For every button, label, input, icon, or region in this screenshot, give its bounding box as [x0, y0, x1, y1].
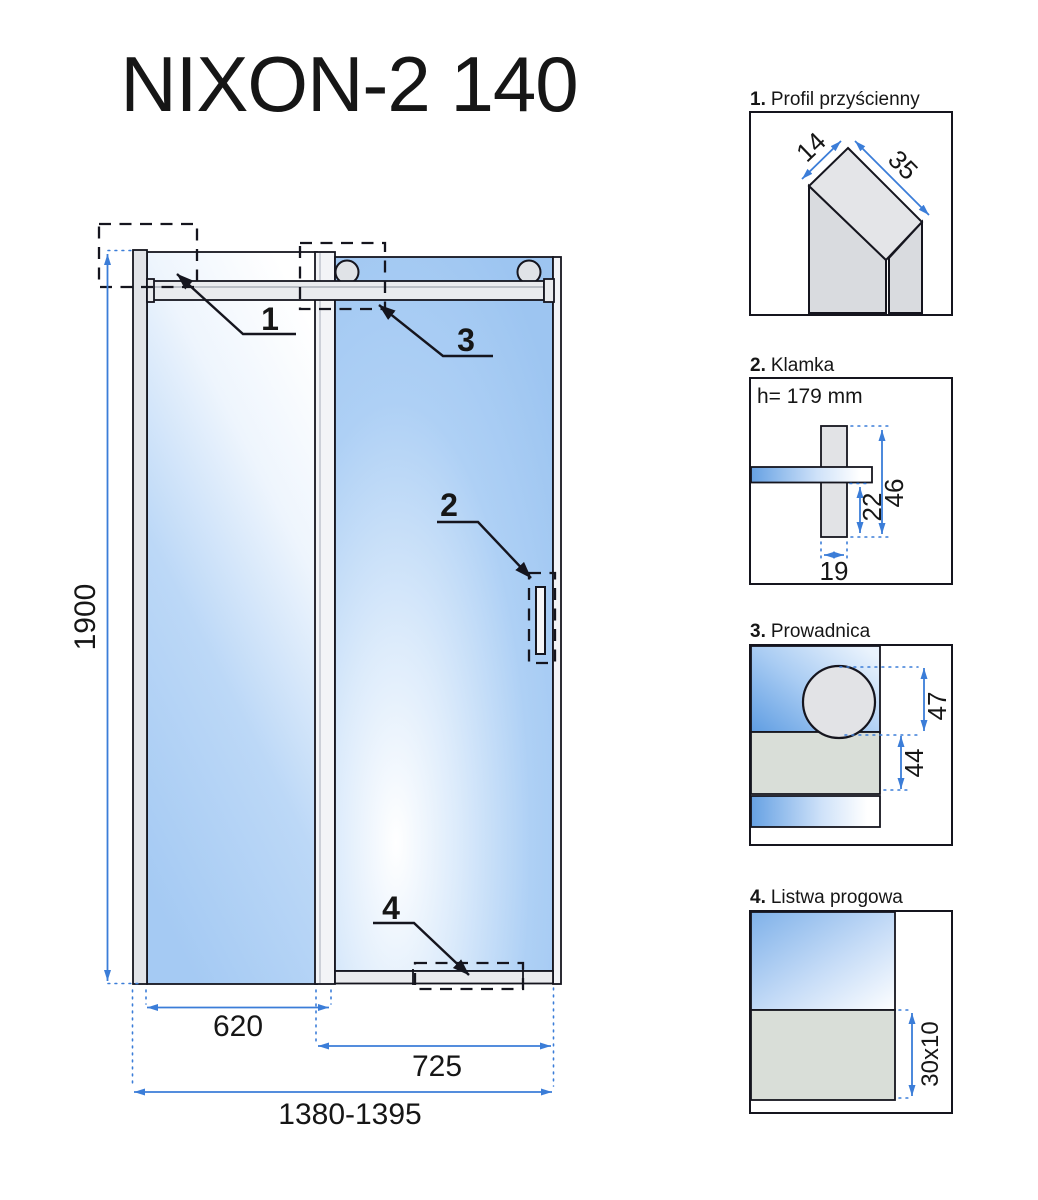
- page: { "title": "NIXON-2 140", "drawing": { "…: [0, 0, 1038, 1200]
- guide-lower-glass-strip: [751, 796, 880, 827]
- glass-section-bar: [751, 467, 872, 483]
- door-glass: [335, 257, 553, 971]
- fixed-panel-glass: [147, 252, 317, 984]
- callout-2-number: 2: [440, 487, 458, 523]
- dim-height-label: 1900: [69, 584, 102, 651]
- dim-door-width-label: 725: [412, 1050, 462, 1083]
- guide-rail-bar: [751, 732, 880, 794]
- panel-1-label: Profil przyścienny: [771, 89, 920, 110]
- panel-1-title: 1.Profil przyścienny: [750, 90, 920, 110]
- panel-2-number: 2.: [750, 355, 766, 376]
- panel-4-label: Listwa progowa: [771, 887, 903, 908]
- detail-panel-4-threshold: 30x10: [750, 911, 952, 1113]
- callout-1-number: 1: [261, 301, 279, 337]
- panel-3-number: 3.: [750, 621, 766, 642]
- top-rail: [147, 281, 544, 300]
- callout-4-number: 4: [382, 890, 400, 926]
- detail-panel-2-handle: h= 179 mm 22 46 19: [750, 378, 952, 586]
- guide-roller: [803, 666, 875, 738]
- main-drawing: 1 3 2 4 1900 620 725 1380-1395: [69, 224, 561, 1131]
- dim-fixed-width-label: 620: [213, 1010, 263, 1043]
- product-title: NIXON-2 140: [24, 45, 674, 123]
- top-rail-left-cap: [147, 279, 154, 302]
- panel-1-number: 1.: [750, 89, 766, 110]
- wall-profile: [133, 250, 147, 984]
- dim-44-label: 44: [899, 749, 929, 778]
- dim-47-label: 47: [922, 692, 952, 721]
- door-handle: [536, 587, 545, 654]
- panel-4-number: 4.: [750, 887, 766, 908]
- panel-3-label: Prowadnica: [771, 621, 870, 642]
- panel-3-title: 3.Prowadnica: [750, 622, 870, 642]
- diagram-canvas: 1 3 2 4 1900 620 725 1380-1395: [0, 0, 1038, 1200]
- door-left-stile: [315, 252, 335, 984]
- panel-4-title: 4.Listwa progowa: [750, 888, 903, 908]
- panel-2-title: 2.Klamka: [750, 356, 834, 376]
- dim-46-label: 46: [879, 479, 909, 508]
- top-rail-end-cap: [544, 279, 554, 302]
- detail-panel-3-guide: 47 44: [750, 645, 952, 845]
- detail-panel-1-wall-profile: 14 35: [750, 112, 952, 315]
- dim-30x10-label: 30x10: [917, 1021, 944, 1086]
- threshold-strip: [335, 971, 553, 984]
- roller-right: [518, 261, 541, 284]
- threshold-glass-area: [751, 912, 895, 1010]
- handle-height-note: h= 179 mm: [757, 385, 863, 408]
- callout-3-number: 3: [457, 322, 475, 358]
- panel-2-label: Klamka: [771, 355, 834, 376]
- roller-left: [336, 261, 359, 284]
- dim-total-width-label: 1380-1395: [278, 1098, 421, 1131]
- threshold-profile: [751, 1010, 895, 1100]
- dim-19-label: 19: [820, 556, 849, 586]
